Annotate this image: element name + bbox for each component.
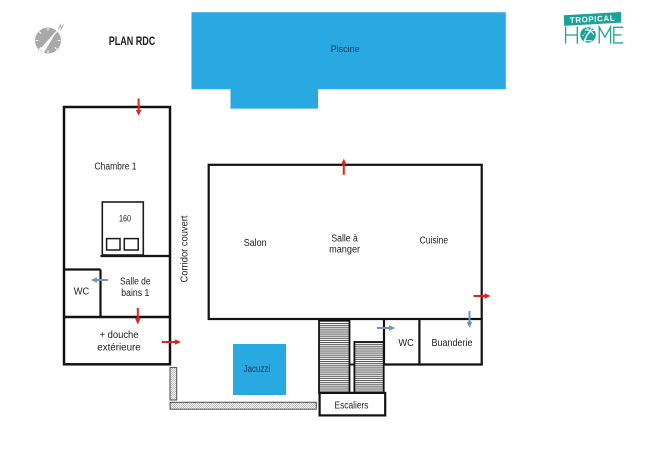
svg-text:160: 160 (119, 214, 131, 225)
svg-text:Buanderie: Buanderie (432, 338, 473, 349)
svg-text:bains 1: bains 1 (121, 288, 149, 299)
svg-text:+ douche: + douche (100, 330, 139, 341)
svg-text:Salle à: Salle à (331, 234, 358, 245)
svg-text:Cuisine: Cuisine (420, 235, 449, 246)
svg-text:WC: WC (74, 285, 90, 297)
svg-text:Jacuzzi: Jacuzzi (244, 364, 271, 375)
svg-text:manger: manger (329, 244, 361, 255)
svg-text:WC: WC (398, 337, 414, 349)
svg-text:Chambre 1: Chambre 1 (95, 161, 137, 172)
svg-text:Piscine: Piscine (331, 44, 360, 55)
svg-text:Corridor couvert: Corridor couvert (180, 215, 191, 282)
svg-text:PLAN RDC: PLAN RDC (109, 34, 156, 48)
svg-text:Salon: Salon (244, 238, 267, 249)
svg-text:Salle de: Salle de (120, 277, 151, 288)
svg-text:extérieure: extérieure (97, 343, 141, 354)
svg-text:Escaliers: Escaliers (335, 400, 369, 411)
